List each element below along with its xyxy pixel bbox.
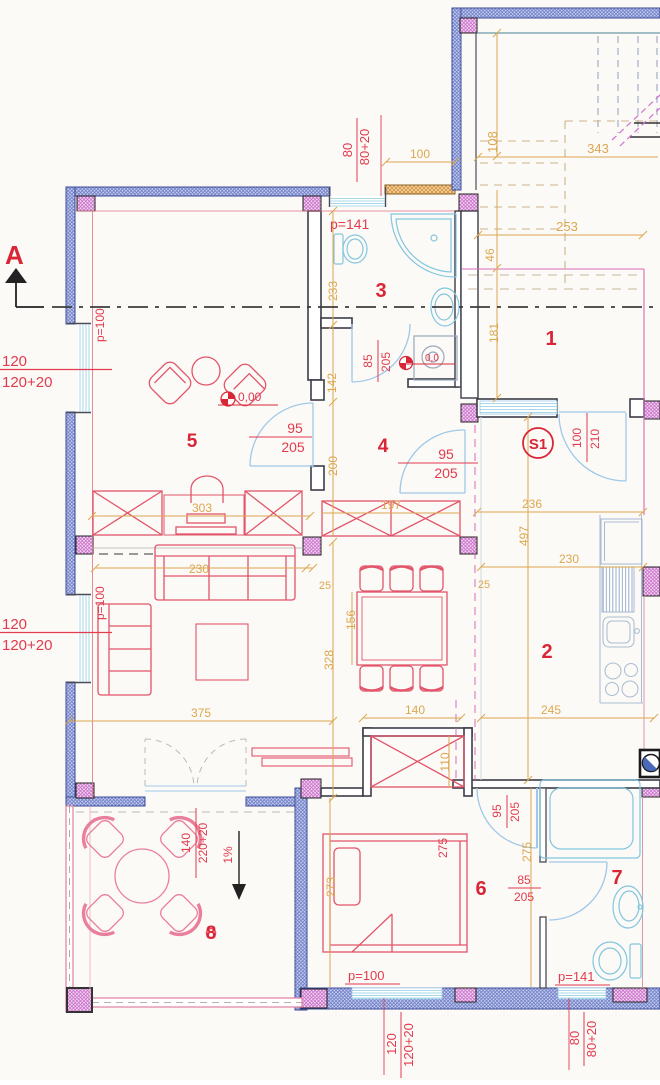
- svg-text:200: 200: [326, 456, 340, 476]
- svg-text:140: 140: [179, 833, 193, 853]
- svg-text:85: 85: [517, 873, 531, 887]
- svg-text:205: 205: [508, 802, 522, 822]
- svg-text:A: A: [5, 240, 24, 270]
- svg-text:120+20: 120+20: [401, 1023, 416, 1067]
- svg-text:328: 328: [322, 650, 336, 670]
- svg-text:108: 108: [485, 131, 500, 153]
- svg-text:275: 275: [520, 842, 534, 862]
- svg-text:253: 253: [556, 219, 578, 234]
- svg-text:110: 110: [438, 752, 452, 771]
- svg-text:156: 156: [344, 610, 358, 630]
- svg-text:4: 4: [378, 436, 389, 457]
- svg-text:p=141: p=141: [558, 969, 595, 984]
- svg-text:5: 5: [187, 431, 198, 452]
- svg-text:95: 95: [287, 420, 303, 436]
- svg-text:0,00: 0,00: [238, 390, 262, 404]
- svg-text:343: 343: [587, 141, 609, 156]
- svg-text:25: 25: [319, 580, 331, 592]
- svg-text:303: 303: [192, 501, 212, 515]
- svg-text:181: 181: [487, 323, 501, 343]
- svg-text:p=141: p=141: [330, 216, 370, 232]
- svg-text:95: 95: [438, 446, 454, 462]
- svg-text:236: 236: [522, 497, 542, 511]
- svg-text:95: 95: [490, 804, 504, 818]
- svg-text:273: 273: [324, 877, 338, 897]
- svg-text:140: 140: [405, 703, 425, 717]
- svg-text:80+20: 80+20: [584, 1021, 599, 1058]
- svg-text:120: 120: [2, 353, 27, 370]
- svg-text:25: 25: [478, 579, 490, 591]
- svg-text:205: 205: [281, 439, 305, 455]
- svg-text:80: 80: [340, 143, 355, 157]
- svg-text:205: 205: [434, 465, 458, 481]
- svg-text:245: 245: [541, 703, 561, 717]
- svg-text:1%: 1%: [221, 846, 235, 864]
- svg-text:0,0: 0,0: [425, 353, 439, 364]
- svg-text:46: 46: [483, 248, 497, 262]
- svg-text:197: 197: [381, 498, 401, 512]
- svg-text:8: 8: [206, 923, 217, 944]
- svg-text:210: 210: [588, 429, 602, 449]
- svg-text:205: 205: [514, 890, 534, 904]
- svg-text:375: 375: [191, 706, 211, 720]
- svg-text:120+20: 120+20: [2, 637, 52, 654]
- svg-text:497: 497: [517, 526, 531, 546]
- svg-text:7: 7: [611, 867, 622, 889]
- svg-text:S1: S1: [529, 436, 547, 453]
- svg-text:120: 120: [384, 1033, 399, 1055]
- svg-text:120: 120: [2, 616, 27, 633]
- svg-text:100: 100: [570, 428, 584, 448]
- svg-text:6: 6: [475, 878, 486, 900]
- svg-text:100: 100: [410, 147, 430, 161]
- svg-text:230: 230: [559, 552, 579, 566]
- svg-text:85: 85: [361, 354, 375, 368]
- svg-text:1: 1: [545, 328, 556, 350]
- svg-text:205: 205: [379, 352, 393, 372]
- svg-text:2: 2: [541, 641, 552, 663]
- svg-text:80+20: 80+20: [357, 129, 372, 166]
- svg-text:230: 230: [189, 562, 209, 576]
- svg-text:275: 275: [436, 838, 450, 858]
- svg-text:p=100: p=100: [93, 308, 107, 342]
- svg-text:120+20: 120+20: [2, 374, 52, 391]
- svg-text:233: 233: [326, 281, 340, 301]
- svg-text:p=100: p=100: [93, 586, 107, 620]
- svg-text:142: 142: [325, 373, 339, 393]
- svg-text:3: 3: [375, 280, 386, 302]
- svg-text:220+20: 220+20: [196, 822, 210, 863]
- svg-text:p=100: p=100: [348, 968, 385, 983]
